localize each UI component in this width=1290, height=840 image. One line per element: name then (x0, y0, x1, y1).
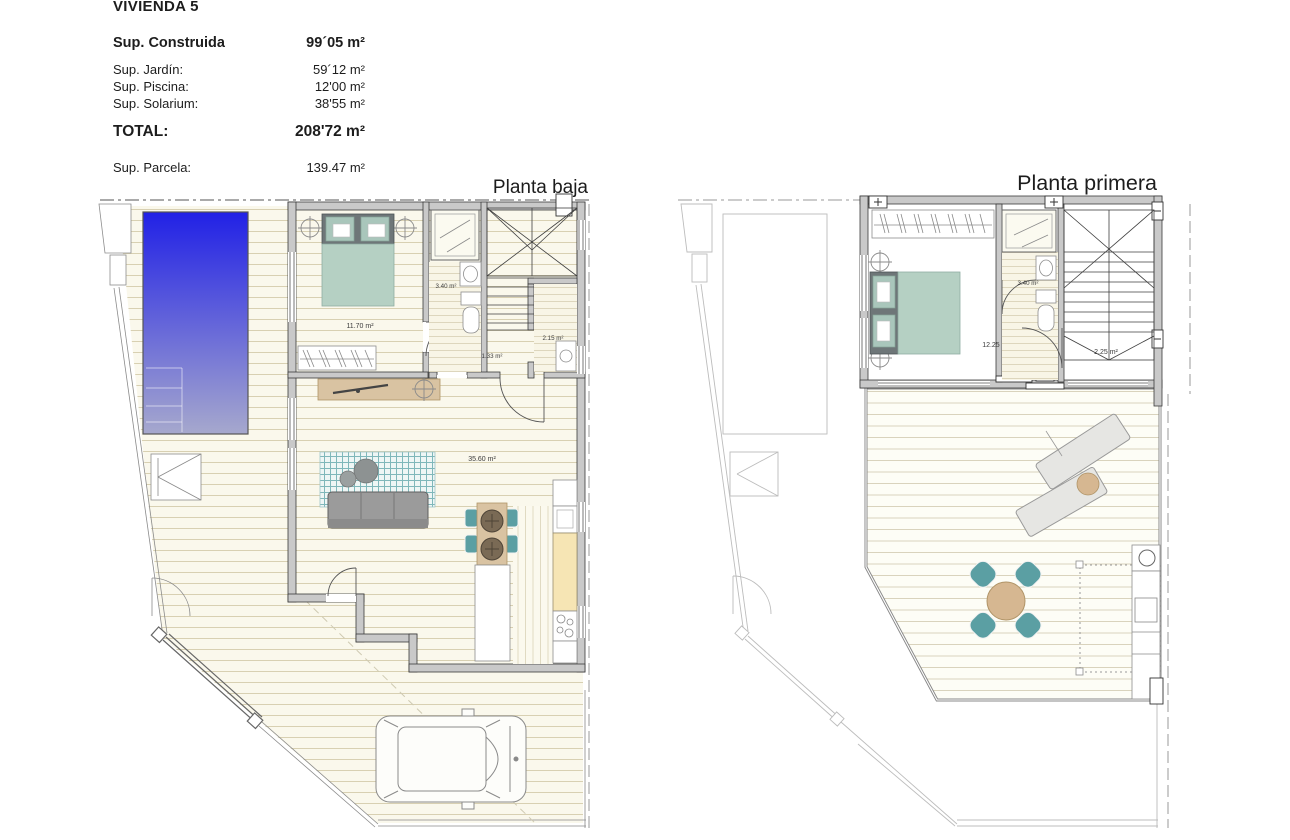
value: 59´12 m² (313, 61, 365, 78)
bathroom: 3.40 m² (429, 210, 481, 372)
stove (553, 611, 577, 641)
value: 12'00 m² (315, 78, 365, 95)
summary-row-piscina: Sup. Piscina: 12'00 m² (113, 78, 365, 95)
label: Sup. Piscina: (113, 78, 189, 95)
summary-row-total: TOTAL: 208'72 m² (113, 123, 365, 141)
value: 139.47 m² (306, 160, 365, 175)
plan-planta-primera: Planta primera (678, 171, 1190, 828)
plan-planta-baja: Planta baja (99, 177, 590, 829)
label: Sup. Solarium: (113, 95, 198, 112)
kitchen-counter (553, 480, 577, 663)
double-bed (322, 214, 394, 306)
side-table (1077, 473, 1099, 495)
plan-primera-title: Planta primera (1017, 171, 1157, 195)
summary-row-parcela: Sup. Parcela: 139.47 m² (113, 160, 365, 175)
shower (1002, 210, 1056, 252)
outdoor-shower (151, 454, 201, 500)
room-label-bathroom-upper: 3.40 m² (1018, 280, 1039, 287)
room-label-laundry: 2.15 m² (543, 335, 564, 342)
wardrobe (298, 346, 376, 370)
room-label-hall-upper: 2.25 m² (1094, 349, 1118, 356)
toilet (461, 292, 481, 333)
area-summary: VIVIENDA 5 Sup. Construida 99´05 m² Sup.… (113, 0, 365, 175)
car (376, 709, 526, 809)
summary-row-jardin: Sup. Jardín: 59´12 m² (113, 61, 365, 78)
bedroom-upper: 12.25 m² (868, 210, 1010, 370)
sink (460, 262, 481, 286)
room-label-hall: 1.33 m² (482, 353, 503, 360)
label: Sup. Parcela: (113, 160, 191, 175)
swimming-pool (143, 212, 248, 434)
kitchen-island (475, 565, 510, 661)
dwelling-title: VIVIENDA 5 (113, 0, 365, 15)
room-label-bathroom: 3.40 m² (436, 283, 457, 290)
washing-machine (556, 341, 576, 371)
coffee-table (354, 459, 378, 483)
double-bed (870, 272, 960, 354)
terrace (866, 388, 1163, 704)
label: Sup. Jardín: (113, 61, 183, 78)
wall-marker (1045, 196, 1063, 208)
bathroom-upper: 3.40 m² (1002, 210, 1058, 380)
tv-console (318, 379, 440, 400)
toilet (1036, 290, 1056, 331)
floorplan-page: VIVIENDA 5 Sup. Construida 99´05 m² Sup.… (0, 0, 1290, 840)
wall-marker (869, 196, 887, 208)
plan-baja-title: Planta baja (493, 177, 589, 198)
summary-row-construida: Sup. Construida 99´05 m² (113, 35, 365, 51)
terrace-pillar (1150, 678, 1163, 704)
entrance-niche (99, 204, 131, 253)
value: 38'55 m² (315, 95, 365, 112)
meter-box (110, 255, 126, 285)
pool-outline (723, 214, 827, 434)
outdoor-kitchen (1132, 545, 1160, 699)
label: TOTAL: (113, 123, 168, 141)
ceiling-lamp-icon (868, 250, 892, 274)
sofa (328, 492, 428, 528)
shower (431, 210, 479, 260)
sink (1036, 256, 1056, 280)
wardrobe (872, 210, 994, 238)
room-label-living: 35.60 m² (468, 456, 496, 463)
laundry-room: 2.15 m² (534, 284, 577, 372)
room-label-bedroom: 11.70 m² (346, 323, 374, 330)
staircase-upper (1064, 210, 1154, 360)
value: 99´05 m² (306, 35, 365, 51)
label: Sup. Construida (113, 35, 225, 51)
summary-row-solarium: Sup. Solarium: 38'55 m² (113, 95, 365, 112)
kitchen-floor (513, 506, 553, 664)
value: 208'72 m² (295, 123, 365, 141)
